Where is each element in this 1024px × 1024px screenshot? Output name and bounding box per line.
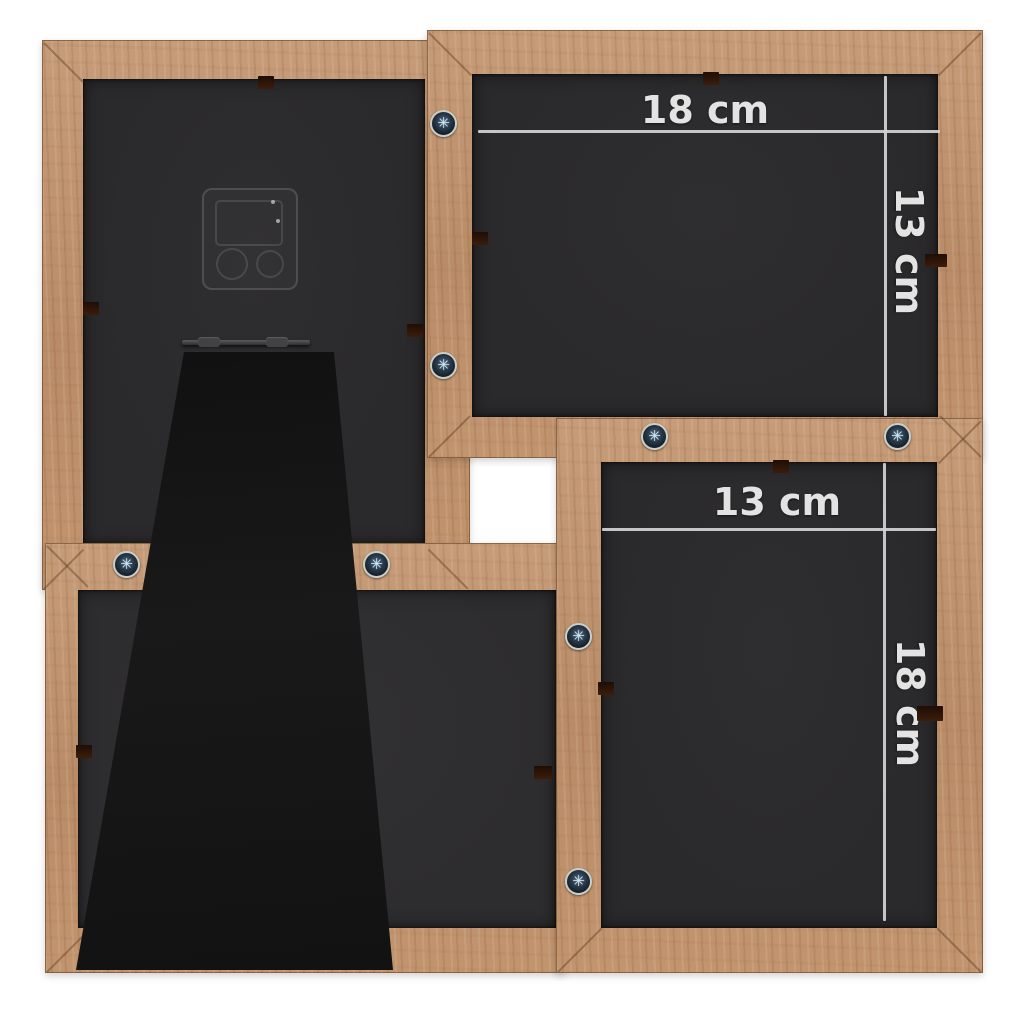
screw-icon (565, 623, 592, 650)
backing-clip-icon (83, 302, 99, 315)
screw-icon (363, 551, 390, 578)
dimension-line-bottom-height (883, 463, 886, 921)
backing-clip-icon (258, 76, 274, 89)
backing-clip-icon (925, 254, 947, 267)
collage-photo-frame-back-photo: 18 cm 13 cm 13 cm 18 cm (0, 0, 1024, 1024)
backing-clip-icon (534, 766, 552, 779)
hinge-knuckle (266, 337, 288, 347)
screw-icon (641, 423, 668, 450)
dimension-label-top-height: 13 cm (887, 187, 931, 315)
dimension-label-top-width: 18 cm (641, 88, 769, 132)
stand-hinge-bar-icon (182, 336, 310, 349)
backing-clip-icon (76, 745, 92, 758)
dimension-label-bottom-height: 18 cm (888, 639, 932, 767)
backing-clip-icon (472, 232, 488, 245)
backing-clip-icon (773, 460, 789, 473)
screw-icon (113, 551, 140, 578)
plastic-glint (276, 219, 280, 223)
screw-icon (884, 423, 911, 450)
hanging-tab-hole (216, 248, 248, 280)
hanging-tab-hole (256, 250, 284, 278)
screw-icon (430, 110, 457, 137)
backing-clip-icon (703, 72, 719, 85)
plastic-glint (271, 200, 275, 204)
hanging-tab-icon (202, 188, 298, 290)
screw-icon (430, 352, 457, 379)
hanging-tab-slot (215, 200, 283, 246)
dimension-label-bottom-width: 13 cm (713, 480, 841, 524)
backing-clip-icon (917, 706, 943, 721)
hinge-knuckle (198, 337, 220, 347)
backing-clip-icon (407, 324, 423, 337)
backing-panel-bottom-right (601, 462, 937, 928)
screw-icon (565, 868, 592, 895)
backing-clip-icon (598, 682, 614, 695)
